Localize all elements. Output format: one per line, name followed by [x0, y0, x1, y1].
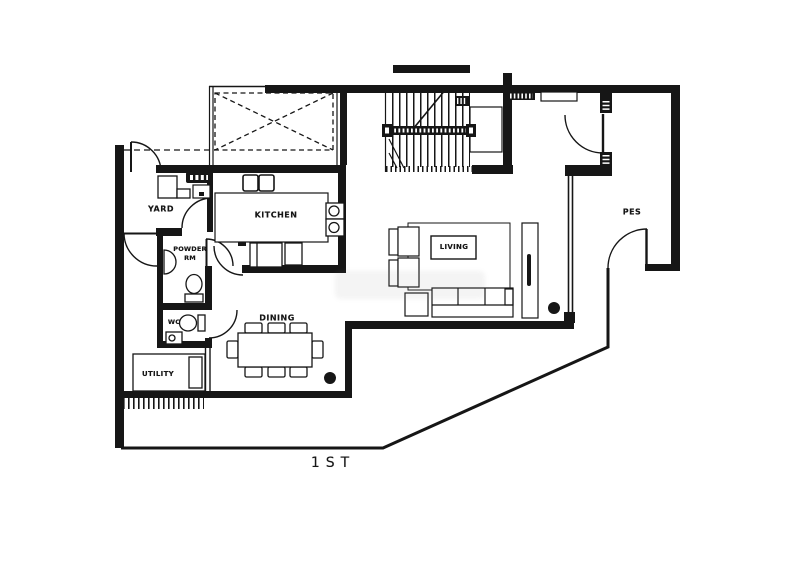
kitchen-cabinet-2	[285, 243, 302, 265]
floor-label: 1ST	[311, 455, 355, 471]
wall-top	[265, 85, 680, 93]
entry-door	[565, 114, 603, 153]
room-label-powder-line2: RM	[184, 254, 196, 262]
dining-chair-bottom-2	[268, 367, 285, 377]
armchair-1-seat	[398, 227, 419, 256]
dining-chair-top-2	[268, 323, 285, 333]
washer	[158, 176, 177, 198]
water-heater-mark	[199, 192, 204, 196]
pes-door-arc	[608, 229, 647, 268]
utility-bed-pillow	[189, 357, 202, 388]
water-heater-box	[193, 185, 210, 198]
wall-yard-bottom	[156, 228, 182, 236]
wall-living-bottom	[345, 321, 574, 329]
stove-burner-1	[329, 206, 339, 216]
wc-door	[209, 310, 237, 338]
void-area	[124, 86, 337, 165]
stove-burner-2	[329, 223, 339, 233]
pes-door	[608, 229, 647, 268]
entry-ledge-box	[541, 92, 577, 101]
room-label-dining: DINING	[259, 314, 295, 323]
kitchen-sink-left	[243, 175, 258, 191]
kitchen-cabinet-1	[250, 243, 282, 267]
tv-screen	[527, 254, 531, 286]
dining-chair-left	[227, 341, 238, 358]
room-label-yard: YARD	[148, 205, 174, 214]
stair-newel-left-core	[385, 128, 389, 134]
wall-right	[671, 85, 680, 270]
corridor-door-arc	[124, 233, 157, 266]
column-dining	[324, 372, 336, 384]
dining-chair-top-1	[245, 323, 262, 333]
stair-newel-right-core	[469, 128, 473, 134]
wall-void-right-pier	[340, 93, 347, 165]
wall-pes-corner-block	[564, 312, 575, 323]
wall-dining-bottom	[115, 391, 352, 398]
wall-stair-right	[503, 73, 512, 174]
wall-kitchen-top	[156, 165, 346, 173]
dining-table	[238, 333, 312, 367]
dining-chair-top-3	[290, 323, 307, 333]
wc-basin-bowl	[169, 335, 175, 341]
corridor-door	[124, 233, 157, 266]
kitchen-fixtures	[215, 175, 344, 267]
room-label-kitchen: KITCHEN	[255, 211, 298, 220]
scan-watermark	[335, 271, 485, 299]
dining-chair-bottom-3	[290, 367, 307, 377]
wall-powder-wc-divider	[157, 303, 212, 310]
wall-living-top-right	[565, 165, 612, 176]
room-label-pes: PES	[623, 208, 642, 217]
wall-powder-left	[157, 236, 163, 348]
powder-toilet-tank	[185, 294, 203, 302]
kitchen-sink-right	[259, 175, 274, 191]
room-label-powder-line1: POWDER	[173, 245, 207, 253]
yard-small-box	[177, 189, 190, 198]
wall-wc-bottom	[157, 341, 212, 348]
wc-toilet-bowl	[180, 315, 197, 331]
powder-toilet-bowl	[186, 275, 202, 294]
armchair-1-back	[389, 229, 398, 255]
wc-door-arc	[209, 310, 237, 338]
room-label-utility: UTILITY	[142, 370, 174, 378]
wc-toilet-tank	[198, 315, 205, 331]
powder-sink	[164, 250, 176, 274]
stair-break-small-1	[389, 139, 404, 168]
dining-furniture	[227, 323, 323, 377]
entry-door-arc	[565, 115, 603, 153]
wall-stair-bay-top	[393, 65, 470, 73]
wall-pes-door-side	[645, 264, 680, 271]
yard-fixtures	[158, 176, 190, 198]
bath-fixtures	[164, 250, 205, 344]
wall-entry-right-upper	[600, 93, 612, 113]
wall-step-vertical	[345, 321, 352, 398]
dining-chair-right	[312, 341, 323, 358]
staircase	[382, 89, 502, 172]
room-label-wc: WC	[168, 318, 180, 326]
floor-plan-canvas: YARD KITCHEN POWDER RM WC UTILITY DINING…	[0, 0, 800, 566]
dining-chair-bottom-1	[245, 367, 262, 377]
wall-left	[115, 145, 124, 448]
room-label-living: LIVING	[440, 243, 469, 251]
db-box	[186, 172, 212, 183]
column-living	[548, 302, 560, 314]
